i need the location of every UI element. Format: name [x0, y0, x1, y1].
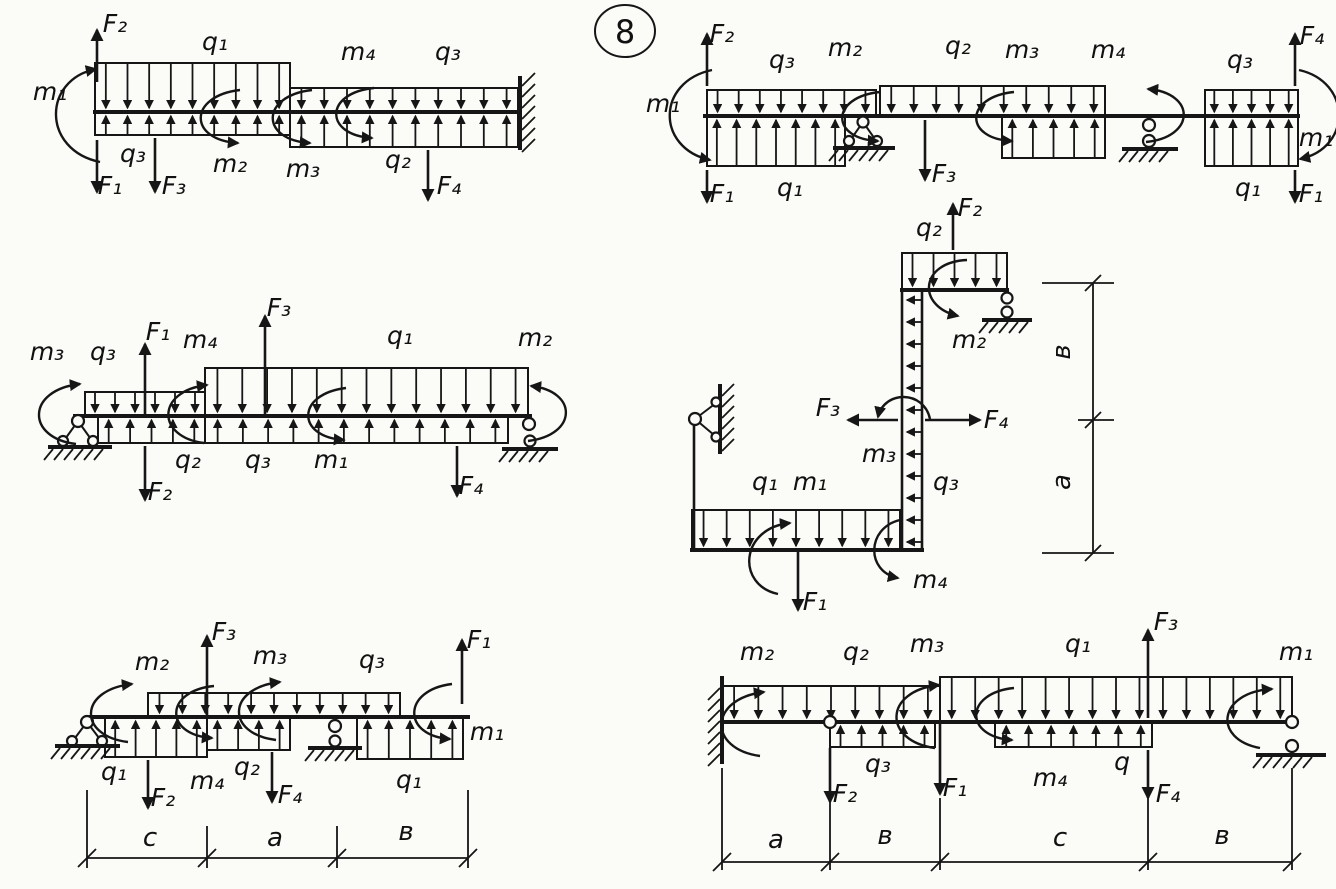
label-q1: q₁ [1065, 629, 1091, 658]
label-q3-bottom: q₃ [245, 445, 271, 474]
label-F3: F₃ [212, 617, 236, 646]
distributed-load-q1-left [707, 116, 845, 166]
label-m3: m₃ [30, 337, 64, 366]
distributed-load-q2 [207, 717, 290, 750]
label-F2: F₂ [833, 779, 857, 808]
label-q1-right: q₁ [396, 765, 422, 794]
roller-support [305, 720, 362, 761]
label-m3: m₃ [1005, 35, 1039, 64]
label-m2: m₂ [740, 637, 774, 666]
label-F1: F₁ [943, 773, 967, 802]
label-F2: F₂ [151, 783, 175, 812]
label-dim-b: в [1047, 344, 1077, 359]
label-m2: m₂ [952, 325, 986, 354]
distributed-load-q [995, 722, 1152, 747]
label-m1: m₁ [1279, 637, 1313, 666]
figure-number: 8 [615, 13, 635, 51]
label-q2: q₂ [916, 213, 942, 242]
distributed-load-mid [1002, 116, 1105, 158]
label-m1: m₁ [470, 717, 504, 746]
label-F4: F₄ [437, 171, 461, 200]
label-q2: q₂ [945, 31, 971, 60]
distributed-load-q1 [205, 368, 528, 416]
diagram-bottom-right: a в c в m₂ q₂ m₃ q₁ F₃ m₁ F₂ q₃ F₁ m₄ q … [708, 607, 1326, 871]
column [902, 290, 922, 550]
label-q3-left: q₃ [769, 45, 795, 74]
label-F2: F₂ [710, 19, 734, 48]
label-F4: F₄ [278, 780, 302, 809]
label-q1: q₁ [202, 27, 228, 56]
distributed-load-q3-left [95, 112, 290, 135]
label-dim-b: в [877, 821, 892, 851]
label-dim-c: c [1053, 823, 1067, 853]
label-F3: F₃ [816, 393, 840, 422]
distributed-load-q1 [95, 63, 290, 112]
label-m2: m₂ [828, 33, 862, 62]
label-F1-left: F₁ [710, 179, 734, 208]
moment-m1-arrow [414, 684, 452, 739]
label-m4: m₄ [341, 37, 375, 66]
distributed-load-q3-column [907, 300, 921, 542]
label-q3-left: q₃ [120, 139, 146, 168]
distributed-load-q2 [290, 112, 518, 147]
label-F4: F₄ [1300, 21, 1324, 50]
label-m3: m₃ [862, 439, 896, 468]
label-F1-right: F₁ [1299, 179, 1323, 208]
label-m4: m₄ [183, 325, 217, 354]
label-q2: q₂ [843, 637, 869, 666]
label-dim-a: a [267, 823, 283, 853]
label-dim-b: в [398, 817, 413, 847]
label-m1: m₁ [33, 77, 67, 106]
label-m2: m₂ [135, 647, 169, 676]
label-m1-right: m₁ [1299, 123, 1333, 152]
label-F1: F₁ [467, 625, 491, 654]
label-q1: q₁ [752, 467, 778, 496]
label-q3-top: q₃ [90, 337, 116, 366]
moment-m1-arrow [749, 523, 790, 594]
label-F2: F₂ [148, 477, 172, 506]
dimension-line: a в c в [713, 768, 1301, 871]
distributed-load-q2 [902, 253, 1007, 290]
moment-m2-arrow [91, 684, 132, 742]
label-m2: m₂ [518, 323, 552, 352]
label-m3: m₃ [253, 641, 287, 670]
fixed-support [520, 73, 535, 152]
roller-support [1119, 119, 1178, 162]
roller-support [979, 293, 1032, 334]
label-F2: F₂ [103, 9, 127, 38]
diagram-top-left: m₁ F₂ F₁ q₁ q₃ F₃ m₂ m₃ m₄ q₃ q₂ F₄ [33, 9, 535, 200]
label-q3: q₃ [359, 645, 385, 674]
label-m1: m₁ [793, 467, 827, 496]
scanned-beam-diagrams-page: 8 m₁ F₂ F₁ q₁ q₃ F₃ m₂ m₃ m₄ q₃ q₂ [0, 0, 1336, 889]
moment-m2-arrow [528, 386, 566, 441]
label-dim-c: c [143, 823, 157, 853]
label-q3: q₃ [933, 467, 959, 496]
label-q2: q₂ [234, 752, 260, 781]
distributed-load-q1 [692, 510, 900, 550]
diagram-middle-right-frame: в a q₂ F₂ m₂ m₃ F₃ F₄ q₃ q₁ m₁ m₄ F₁ [689, 193, 1114, 616]
label-q3: q₃ [865, 749, 891, 778]
label-q3-right: q₃ [435, 37, 461, 66]
label-F1: F₁ [146, 317, 170, 346]
label-q1: q₁ [387, 321, 413, 350]
label-dim-a: a [768, 825, 784, 855]
label-F3: F₃ [932, 159, 956, 188]
label-m3: m₃ [286, 154, 320, 183]
label-F4: F₄ [984, 405, 1008, 434]
label-q3-right: q₃ [1227, 45, 1253, 74]
label-m4: m₄ [1033, 763, 1067, 792]
diagram-top-right: F₂ m₁ F₁ q₃ q₁ m₂ q₂ F₃ m₃ m₄ q₃ q₁ F₄ m… [646, 19, 1336, 208]
label-m1-left: m₁ [646, 89, 680, 118]
figure-8-diagrams: 8 m₁ F₂ F₁ q₁ q₃ F₃ m₂ m₃ m₄ q₃ q₂ [0, 0, 1336, 889]
label-m3: m₃ [910, 629, 944, 658]
label-q2: q₂ [385, 145, 411, 174]
label-q: q [1114, 747, 1130, 776]
label-m1: m₁ [314, 445, 348, 474]
label-q2: q₂ [175, 445, 201, 474]
label-m4: m₄ [1091, 35, 1125, 64]
distributed-load-q3-bottom [205, 416, 508, 443]
label-m4: m₄ [190, 766, 224, 795]
distributed-load-q3-right [290, 88, 518, 112]
figure-number-badge: 8 [595, 5, 655, 57]
distributed-load-q1-left [105, 717, 207, 757]
label-q1-right: q₁ [1235, 173, 1261, 202]
label-F3: F₃ [162, 171, 186, 200]
label-F4: F₄ [1156, 779, 1180, 808]
fixed-support [708, 676, 722, 766]
label-F2: F₂ [958, 193, 982, 222]
label-dim-a: a [1047, 474, 1077, 490]
diagram-middle-left: m₃ q₃ F₁ m₄ F₃ q₁ m₂ q₂ F₂ q₃ m₁ F₄ [30, 293, 566, 506]
wall-pin-support [689, 384, 734, 454]
distributed-load-q1-right [1205, 116, 1298, 166]
label-m2: m₂ [213, 149, 247, 178]
label-q1-left: q₁ [777, 173, 803, 202]
hinge [824, 716, 836, 728]
label-m4: m₄ [913, 565, 947, 594]
distributed-load-q3-right [1205, 90, 1298, 116]
label-dim-b2: в [1214, 821, 1229, 851]
label-F1: F₁ [98, 171, 122, 200]
dimension-line: в a [1042, 275, 1114, 561]
label-F4: F₄ [459, 471, 483, 500]
label-F3: F₃ [267, 293, 291, 322]
distributed-load-q2 [880, 86, 1105, 116]
label-F3: F₃ [1154, 607, 1178, 636]
label-q1-left: q₁ [101, 757, 127, 786]
label-F1: F₁ [803, 587, 827, 616]
diagram-bottom-left: c a в m₂ F₃ m₃ q₃ F₁ q₁ F₂ m₄ q₂ F₄ q₁ m… [51, 617, 504, 868]
